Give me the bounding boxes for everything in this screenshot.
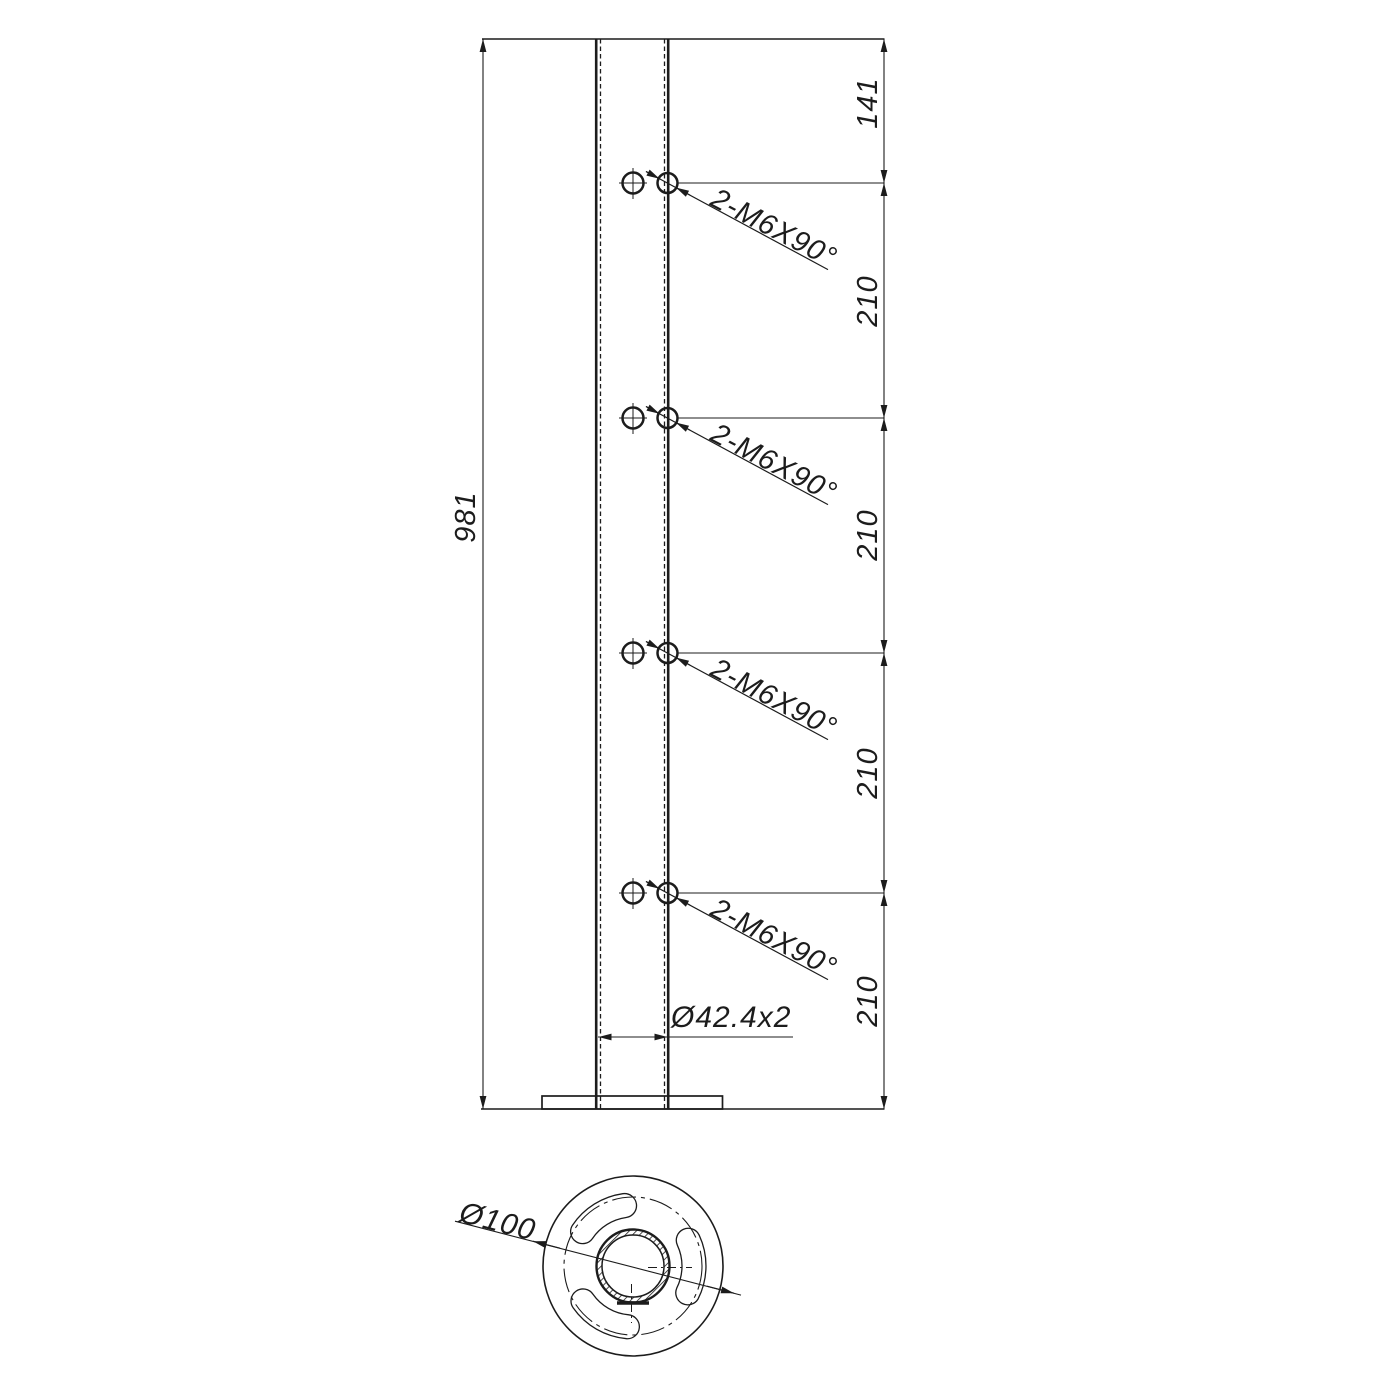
spacing-label-3: 210 [853,747,883,798]
leader-arrow-in [646,642,660,649]
engineering-drawing-canvas: 981 141 210 210 210 210 2-M6X90° 2-M6X90… [0,0,1400,1400]
leader-arrow-in [646,407,660,414]
tube-section-outer [597,1230,670,1303]
leader-arrow-in [646,172,660,179]
overall-height-label: 981 [451,491,481,542]
leader-arrow-out [676,188,690,196]
leader-arrow-in [646,882,660,889]
spacing-label-4: 210 [853,975,883,1026]
slot-hole-2 [676,1228,706,1305]
spacing-label-1: 210 [853,275,883,326]
bottom-view [455,1176,741,1356]
base-plate-outline-circle [543,1176,723,1356]
leader-arrow-out [676,658,690,666]
top-offset-label: 141 [853,77,883,128]
leader-arrow-out [676,898,690,906]
drawing-svg [0,0,1400,1400]
tube-size-label: Ø42.4x2 [671,1003,791,1033]
base-plate [542,1096,723,1109]
spacing-label-2: 210 [853,509,883,560]
tube-section-inner [602,1235,664,1297]
leader-arrow-out [676,423,690,431]
bolt-circle-centerline [564,1197,702,1335]
